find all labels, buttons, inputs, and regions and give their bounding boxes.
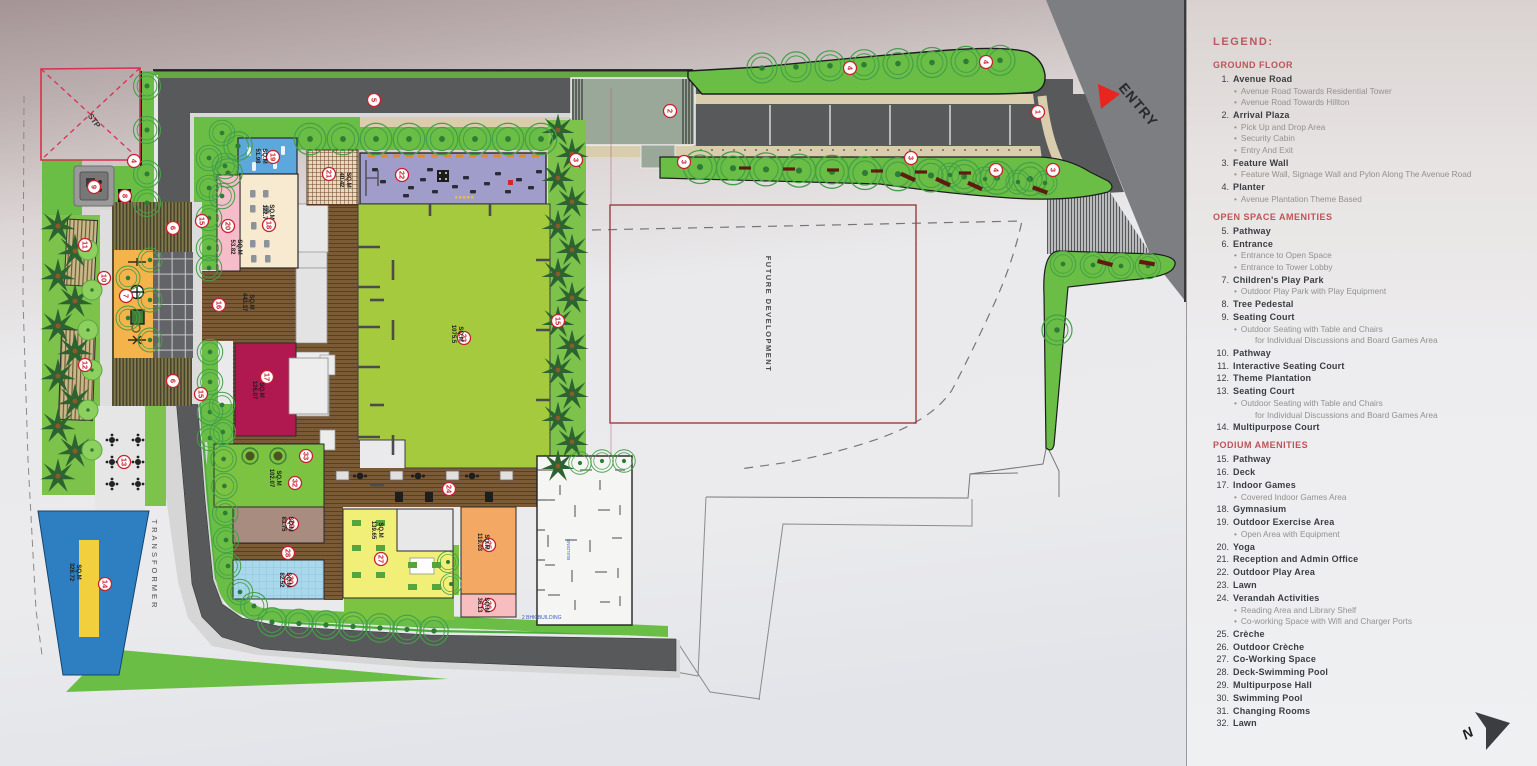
svg-text:7: 7 [121, 294, 130, 298]
svg-text:102.07: 102.07 [268, 469, 274, 488]
svg-text:15: 15 [553, 317, 562, 325]
svg-text:443.37: 443.37 [241, 293, 247, 312]
svg-text:19: 19 [268, 153, 277, 161]
svg-text:83.75: 83.75 [280, 516, 286, 532]
svg-text:SQ.M: SQ.M [248, 294, 254, 309]
svg-text:12: 12 [80, 361, 89, 369]
svg-text:SQ.M: SQ.M [483, 597, 489, 612]
svg-text:BUILDING: BUILDING [566, 538, 571, 560]
svg-text:126.07: 126.07 [251, 381, 257, 400]
svg-text:3: 3 [906, 156, 915, 160]
svg-text:10: 10 [99, 274, 108, 282]
svg-text:15: 15 [197, 217, 206, 225]
svg-text:53.82: 53.82 [229, 239, 235, 255]
svg-text:SQ.M: SQ.M [258, 382, 264, 397]
svg-text:2 BHK BUILDING: 2 BHK BUILDING [522, 615, 562, 621]
svg-text:1075.5: 1075.5 [450, 325, 456, 344]
svg-text:SQ.M: SQ.M [377, 522, 383, 537]
svg-text:21: 21 [324, 170, 333, 178]
svg-text:N: N [1459, 723, 1477, 742]
svg-text:SQ.M: SQ.M [75, 564, 81, 579]
svg-text:5: 5 [369, 98, 378, 102]
svg-text:TRANSFORMER: TRANSFORMER [150, 520, 159, 611]
svg-text:28: 28 [283, 549, 292, 557]
svg-text:2: 2 [665, 109, 674, 113]
svg-text:11: 11 [80, 241, 89, 249]
svg-text:SQ.M: SQ.M [261, 148, 267, 163]
svg-text:122.7: 122.7 [261, 204, 267, 220]
svg-text:SQ.M: SQ.M [457, 326, 463, 341]
svg-text:3: 3 [571, 158, 580, 162]
svg-text:36.13: 36.13 [476, 597, 482, 613]
svg-text:17: 17 [262, 373, 271, 381]
svg-text:SQ.M: SQ.M [285, 572, 291, 587]
svg-text:51.98: 51.98 [254, 148, 260, 164]
svg-text:3: 3 [679, 160, 688, 164]
svg-text:119.03: 119.03 [476, 533, 482, 552]
svg-text:82.52: 82.52 [278, 572, 284, 588]
svg-text:SQ.M: SQ.M [275, 470, 281, 485]
svg-text:FUTURE DEVELOPMENT: FUTURE DEVELOPMENT [764, 256, 773, 373]
svg-text:16: 16 [214, 301, 223, 309]
svg-text:SQ.M: SQ.M [345, 172, 351, 187]
svg-text:SQ.M: SQ.M [287, 516, 293, 531]
svg-text:22: 22 [397, 171, 406, 179]
svg-text:SQ.M: SQ.M [268, 204, 274, 219]
svg-text:1: 1 [1033, 110, 1042, 114]
svg-text:3: 3 [1048, 168, 1057, 172]
svg-text:15: 15 [196, 390, 205, 398]
svg-text:14: 14 [100, 580, 109, 589]
svg-text:328.72: 328.72 [68, 563, 74, 582]
svg-text:139.65: 139.65 [370, 521, 376, 540]
svg-text:40.42: 40.42 [338, 172, 344, 188]
svg-text:27: 27 [376, 555, 385, 563]
svg-text:9: 9 [89, 185, 98, 189]
svg-text:8: 8 [120, 194, 129, 198]
svg-text:33: 33 [301, 452, 310, 460]
svg-text:13: 13 [119, 458, 128, 466]
svg-text:24: 24 [444, 485, 453, 494]
svg-text:SQ.M: SQ.M [236, 239, 242, 254]
svg-text:32: 32 [290, 479, 299, 487]
svg-text:18: 18 [264, 221, 273, 229]
svg-text:SQ.M: SQ.M [483, 534, 489, 549]
svg-text:20: 20 [223, 222, 232, 230]
svg-text:6: 6 [168, 379, 177, 383]
svg-text:6: 6 [168, 226, 177, 230]
